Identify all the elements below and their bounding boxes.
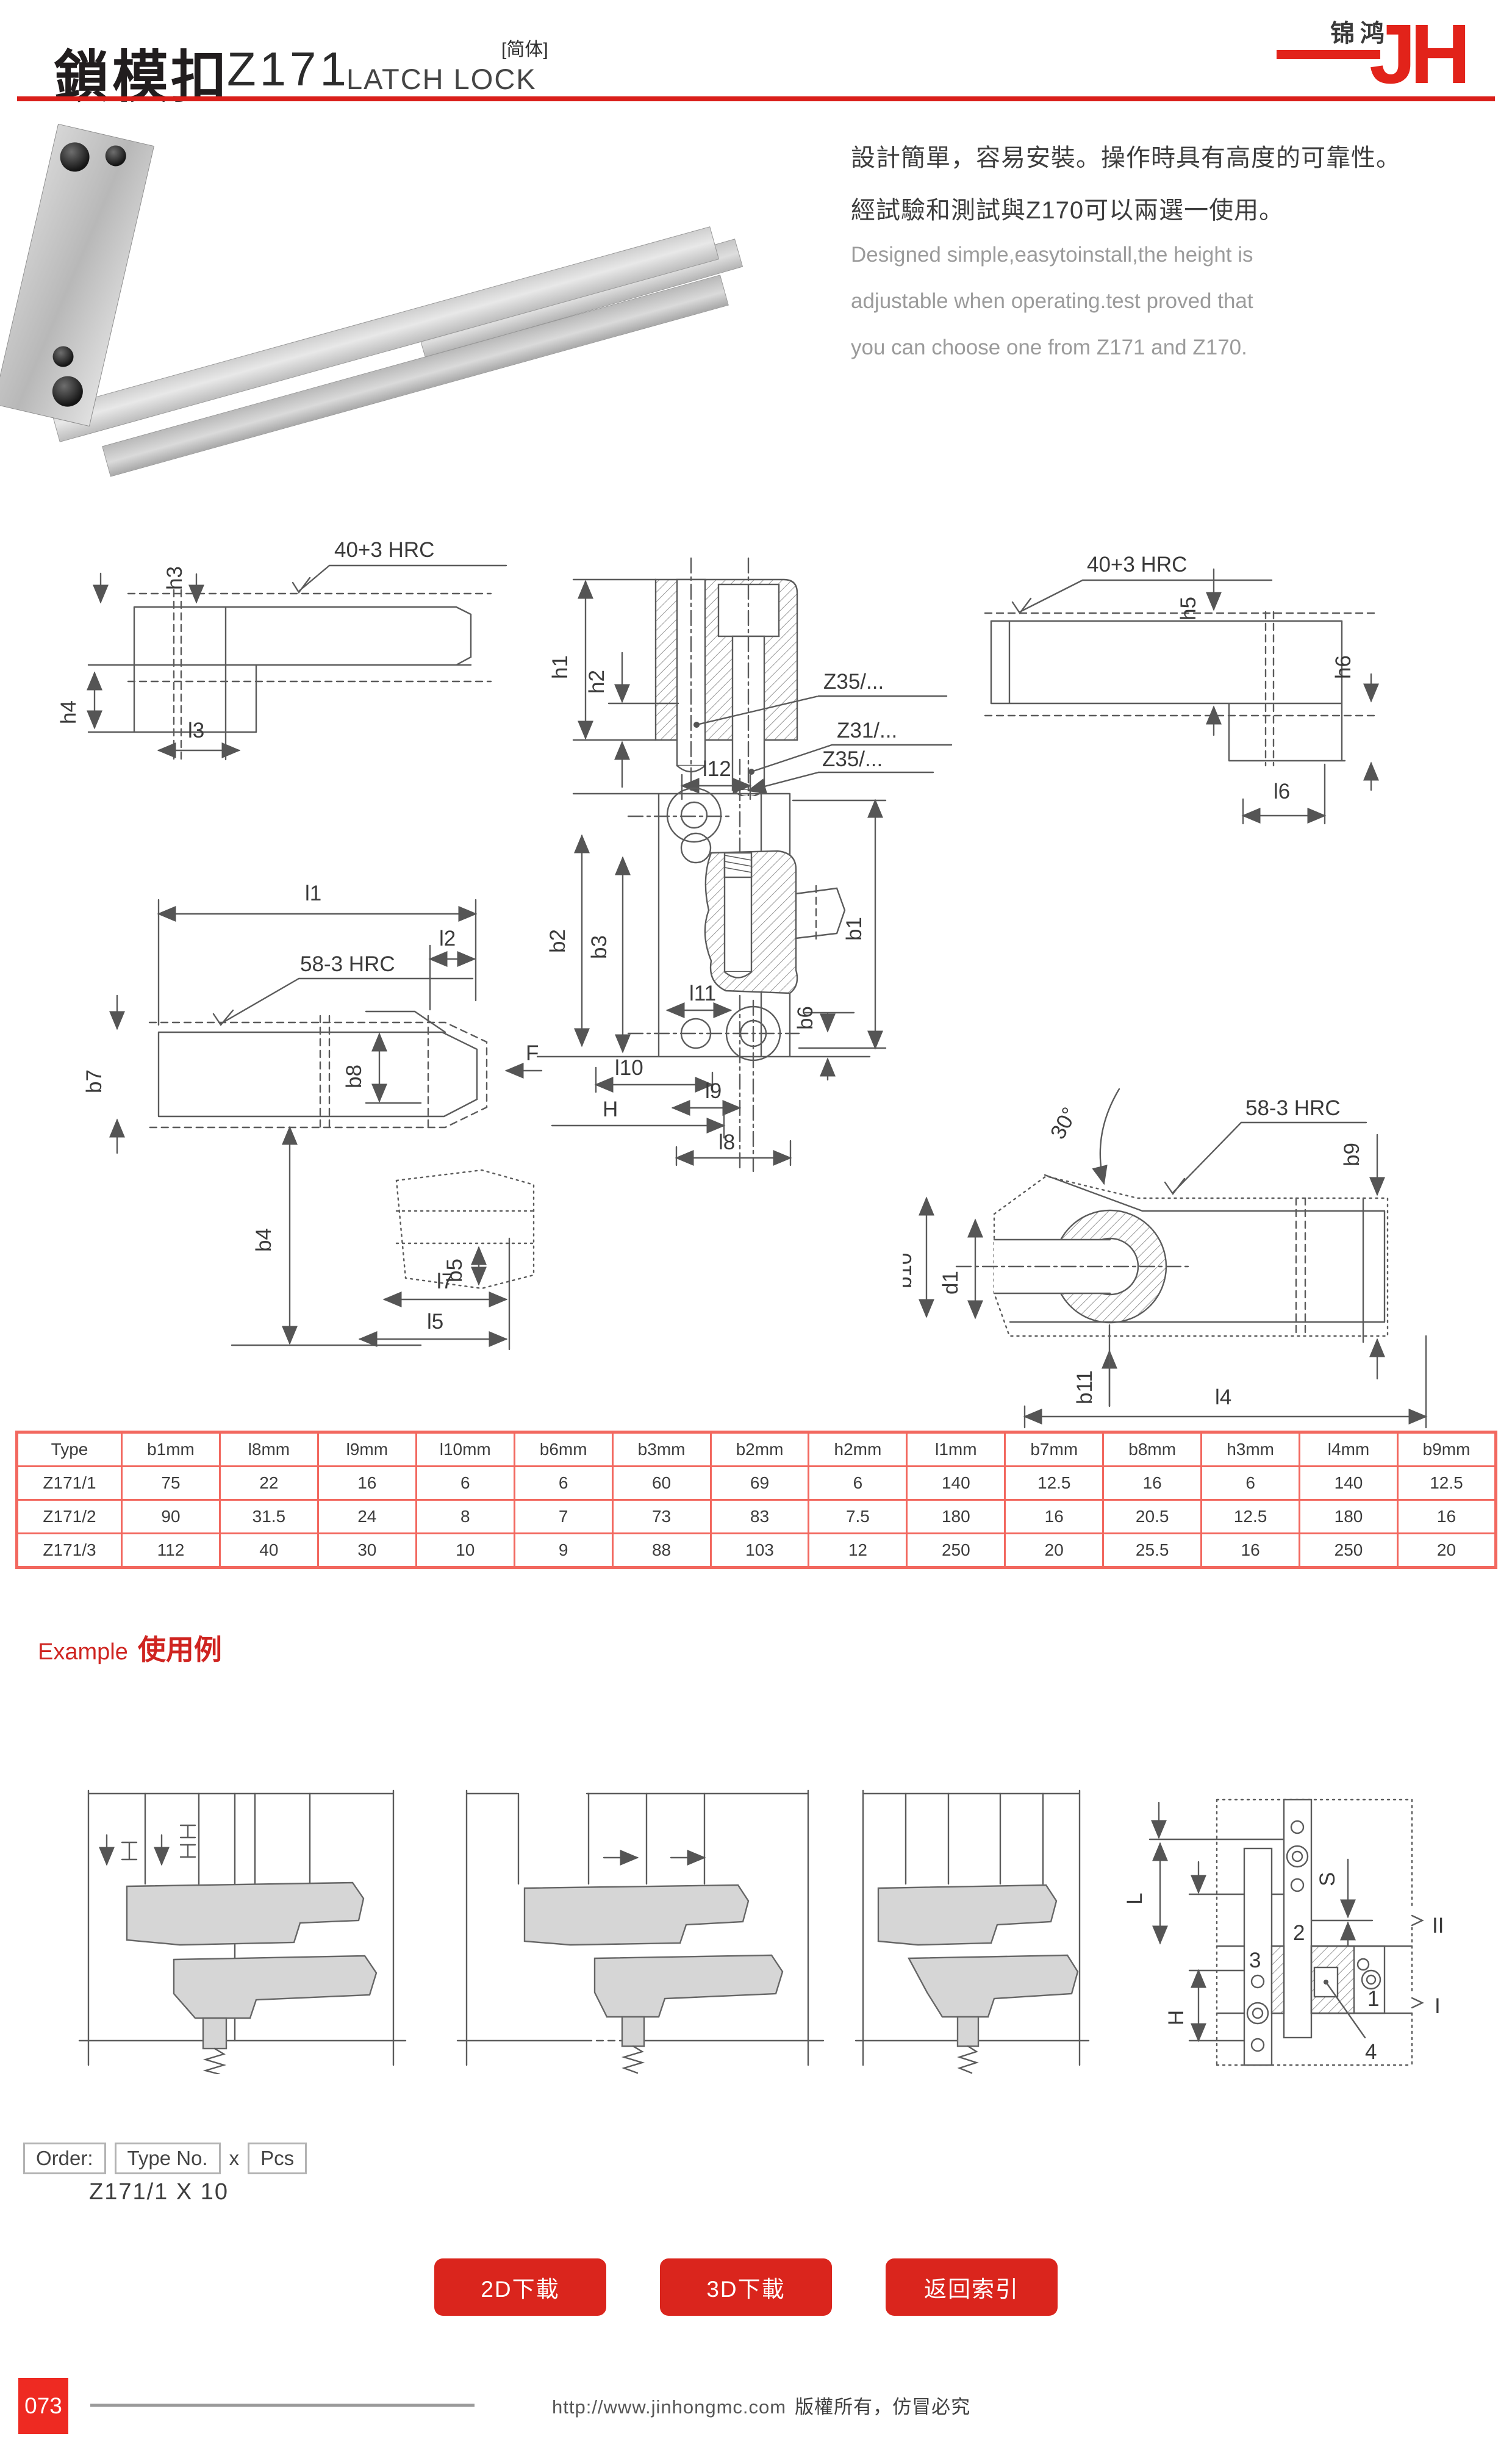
drawing-hook-view: 30° 58-3 HRC b9 b10 d1 b11 l4	[903, 952, 1464, 1434]
hardness-callout: 40+3 HRC	[334, 538, 434, 562]
drawing-bar-side-view: 40+3 HRC h5 h6 l6	[951, 522, 1385, 827]
dim-label-H: H	[1164, 2010, 1188, 2025]
table-cell: 31.5	[220, 1500, 318, 1534]
catalog-page: 鎖模扣 Z171 LATCH LOCK [简体] 锦鸿 JH 設計簡單，容易安裝…	[0, 0, 1512, 2450]
example-diagram-released	[851, 1733, 1092, 2074]
table-row: Z171/1752216666069614012.516614012.5	[17, 1467, 1496, 1500]
table-cell: 103	[711, 1534, 809, 1568]
dim-label-b7: b7	[82, 1069, 106, 1093]
dim-label-h1: h1	[548, 655, 572, 679]
page-title-en: LATCH LOCK	[346, 62, 537, 96]
footer-divider	[90, 2404, 475, 2407]
dim-label-l11: l11	[689, 982, 716, 1005]
table-cell: 69	[711, 1467, 809, 1500]
table-cell: 60	[612, 1467, 711, 1500]
hardness-callout: 40+3 HRC	[1087, 553, 1187, 577]
dim-label-b6: b6	[794, 1006, 817, 1030]
table-cell: 16	[1202, 1534, 1300, 1568]
table-cell: 12.5	[1005, 1467, 1103, 1500]
table-cell: 40	[220, 1534, 318, 1568]
drawing-lines	[88, 566, 506, 761]
column-header: b9mm	[1397, 1432, 1496, 1467]
stage-label-2: II	[1432, 1914, 1444, 1938]
dim-label-H: H	[603, 1097, 618, 1121]
dim-label-d1: d1	[939, 1271, 962, 1295]
order-pcs-box: Pcs	[248, 2143, 307, 2174]
drawing-lines	[537, 760, 933, 1171]
table-cell: 180	[1300, 1500, 1398, 1534]
table-cell: 25.5	[1103, 1534, 1202, 1568]
dim-label-l7: l7	[437, 1270, 453, 1293]
order-label-box: Order:	[23, 2143, 106, 2174]
table-cell: 6	[416, 1467, 514, 1500]
photo-screw-icon	[103, 143, 128, 168]
table-cell: 30	[318, 1534, 416, 1568]
download-3d-button[interactable]: 3D下載	[660, 2258, 832, 2316]
table-cell: 16	[1397, 1500, 1496, 1534]
table-cell: 20	[1005, 1534, 1103, 1568]
column-header: l10mm	[416, 1432, 514, 1467]
ref-callout-z35: Z35/...	[823, 670, 884, 694]
example-diagram-detail: L S H 2 3 1 4 II I	[1092, 1708, 1494, 2086]
column-header: h3mm	[1202, 1432, 1300, 1467]
drawing-lock-body-view: l12 Z35/... b1 b2 b3 l11 b6 l10 l9 H l8	[537, 750, 939, 1177]
drawing-lines	[1150, 1800, 1422, 2065]
dim-label-l1: l1	[305, 882, 321, 905]
example-section-label: Example 使用例	[38, 1628, 222, 1668]
column-header: b8mm	[1103, 1432, 1202, 1467]
dim-label-l5: l5	[427, 1310, 443, 1334]
spec-table-head: Typeb1mml8mml9mml10mmb6mmb3mmb2mmh2mml1m…	[17, 1432, 1496, 1467]
table-cell: Z171/3	[17, 1534, 122, 1568]
table-cell: 8	[416, 1500, 514, 1534]
column-header: b6mm	[514, 1432, 612, 1467]
ref-callout-z35: Z35/...	[822, 750, 883, 771]
order-type-box: Type No.	[115, 2143, 221, 2174]
hardness-callout: 58-3 HRC	[300, 952, 395, 976]
description-line: 設計簡單，容易安裝。操作時具有高度的可靠性。	[851, 138, 1473, 173]
column-header: l9mm	[318, 1432, 416, 1467]
spec-table: Typeb1mml8mml9mml10mmb6mmb3mmb2mmh2mml1m…	[15, 1431, 1497, 1569]
jh-logo-icon: 锦鸿 JH	[1277, 7, 1466, 99]
dim-label-b8: b8	[342, 1065, 366, 1088]
table-cell: 16	[1103, 1467, 1202, 1500]
table-cell: 140	[1300, 1467, 1398, 1500]
drawing-lines	[79, 1791, 406, 2074]
table-cell: 90	[122, 1500, 220, 1534]
dim-label-h6: h6	[1331, 655, 1355, 679]
table-cell: 12.5	[1397, 1467, 1496, 1500]
table-cell: 6	[514, 1467, 612, 1500]
table-cell: 140	[907, 1467, 1005, 1500]
spec-table-body: Z171/1752216666069614012.516614012.5Z171…	[17, 1467, 1496, 1568]
column-header: l1mm	[907, 1432, 1005, 1467]
stage-label-1: I	[1435, 1994, 1441, 2018]
example-diagram-opening	[451, 1733, 842, 2074]
table-cell: 22	[220, 1467, 318, 1500]
dim-label-h5: h5	[1177, 597, 1200, 620]
part-number-4: 4	[1365, 2040, 1377, 2064]
dim-label-b1: b1	[842, 917, 866, 941]
table-cell: 73	[612, 1500, 711, 1534]
table-cell: 9	[514, 1534, 612, 1568]
table-cell: 7	[514, 1500, 612, 1534]
dim-label-h3: h3	[163, 566, 187, 590]
column-header: b7mm	[1005, 1432, 1103, 1467]
dim-label-h2: h2	[585, 670, 609, 694]
photo-screw-icon	[57, 140, 93, 175]
header-row: Typeb1mml8mml9mml10mmb6mmb3mmb2mmh2mml1m…	[17, 1432, 1496, 1467]
company-logo: 锦鸿 JH	[1272, 5, 1503, 99]
dim-label-l6: l6	[1274, 780, 1290, 803]
download-2d-button[interactable]: 2D下載	[434, 2258, 606, 2316]
description-line: Designed simple,easytoinstall,the height…	[851, 243, 1473, 267]
dim-label-l4: l4	[1215, 1385, 1231, 1409]
table-cell: Z171/1	[17, 1467, 122, 1500]
table-cell: 12.5	[1202, 1500, 1300, 1534]
photo-screw-icon	[49, 373, 86, 410]
drawing-lines	[457, 1791, 823, 2073]
dim-label-b3: b3	[587, 935, 611, 959]
description-line: adjustable when operating.test proved th…	[851, 289, 1473, 314]
column-header: b1mm	[122, 1432, 220, 1467]
table-cell: 16	[318, 1467, 416, 1500]
table-cell: 83	[711, 1500, 809, 1534]
table-cell: 6	[1202, 1467, 1300, 1500]
dim-label-h4: h4	[57, 700, 81, 724]
dim-label-S: S	[1316, 1872, 1339, 1886]
product-photo	[24, 131, 769, 479]
example-label-cn: 使用例	[138, 1628, 222, 1668]
dim-label-b2: b2	[546, 929, 570, 953]
drawing-lines	[856, 1791, 1089, 2073]
drawing-lines	[926, 1089, 1426, 1428]
part-number-3: 3	[1249, 1949, 1261, 1972]
table-cell: 20	[1397, 1534, 1496, 1568]
spec-table-wrap: Typeb1mml8mml9mml10mmb6mmb3mmb2mmh2mml1m…	[15, 1431, 1497, 1569]
part-number-2: 2	[1293, 1921, 1305, 1945]
column-header: l8mm	[220, 1432, 318, 1467]
table-cell: 180	[907, 1500, 1005, 1534]
hardness-callout: 58-3 HRC	[1245, 1096, 1341, 1120]
column-header: h2mm	[809, 1432, 907, 1467]
table-cell: 7.5	[809, 1500, 907, 1534]
table-cell: 250	[907, 1534, 1005, 1568]
description-line: 經試驗和測試與Z170可以兩選一使用。	[851, 190, 1473, 226]
example-label-en: Example	[38, 1639, 128, 1665]
table-cell: 88	[612, 1534, 711, 1568]
table-cell: 112	[122, 1534, 220, 1568]
dim-label-l12: l12	[703, 757, 731, 781]
page-number-badge: 073	[18, 2378, 68, 2434]
dim-label-b9: b9	[1340, 1143, 1364, 1166]
table-cell: 75	[122, 1467, 220, 1500]
part-number-1: 1	[1367, 1987, 1379, 2011]
table-cell: 6	[809, 1467, 907, 1500]
column-header: b3mm	[612, 1432, 711, 1467]
order-sample: Z171/1 X 10	[89, 2179, 229, 2205]
drawing-latch-side-view: h3 40+3 HRC h4 l3	[37, 522, 525, 784]
dim-label-l9: l9	[705, 1079, 722, 1103]
table-cell: 24	[318, 1500, 416, 1534]
table-cell: 20.5	[1103, 1500, 1202, 1534]
table-cell: 16	[1005, 1500, 1103, 1534]
column-header: Type	[17, 1432, 122, 1467]
product-description: 設計簡單，容易安裝。操作時具有高度的可靠性。 經試驗和測試與Z170可以兩選一使…	[851, 138, 1473, 382]
table-cell: 250	[1300, 1534, 1398, 1568]
dim-label-L: L	[1123, 1893, 1147, 1905]
photo-latch-plate	[0, 124, 154, 426]
dim-label-b10: b10	[903, 1253, 916, 1288]
dim-label-l10: l10	[615, 1056, 643, 1080]
language-tag: [简体]	[501, 34, 548, 61]
dim-label-b11: b11	[1073, 1370, 1097, 1404]
order-row: Order: Type No. x Pcs	[23, 2143, 307, 2174]
table-row: Z171/29031.5248773837.51801620.512.51801…	[17, 1500, 1496, 1534]
dim-label-l2: l2	[439, 927, 456, 950]
footer-url: http://www.jinhongmc.com	[552, 2396, 786, 2418]
order-times: x	[229, 2147, 240, 2170]
column-header: b2mm	[711, 1432, 809, 1467]
drawing-latch-plan-view: l1 l2 58-3 HRC b7 b8 F b4 b5 l7 l5	[79, 848, 549, 1367]
footer-text: http://www.jinhongmc.com版權所有，仿冒必究	[552, 2391, 970, 2419]
logo-letters: JH	[1369, 7, 1466, 99]
angle-label: 30°	[1046, 1104, 1082, 1143]
page-title-model: Z171	[227, 41, 350, 97]
table-row: Z171/3112403010988103122502025.51625020	[17, 1534, 1496, 1568]
column-header: l4mm	[1300, 1432, 1398, 1467]
back-to-index-button[interactable]: 返回索引	[886, 2258, 1058, 2316]
table-cell: 10	[416, 1534, 514, 1568]
ref-callout-z31: Z31/...	[837, 719, 897, 742]
description-line: you can choose one from Z171 and Z170.	[851, 336, 1473, 360]
table-cell: Z171/2	[17, 1500, 122, 1534]
dim-label-b4: b4	[252, 1228, 276, 1252]
photo-screw-icon	[51, 344, 76, 369]
table-cell: 12	[809, 1534, 907, 1568]
example-diagram-closed	[73, 1733, 421, 2074]
footer-notice: 版權所有，仿冒必究	[795, 2396, 970, 2418]
dim-label-l8: l8	[718, 1130, 735, 1154]
dim-label-l3: l3	[188, 719, 204, 742]
